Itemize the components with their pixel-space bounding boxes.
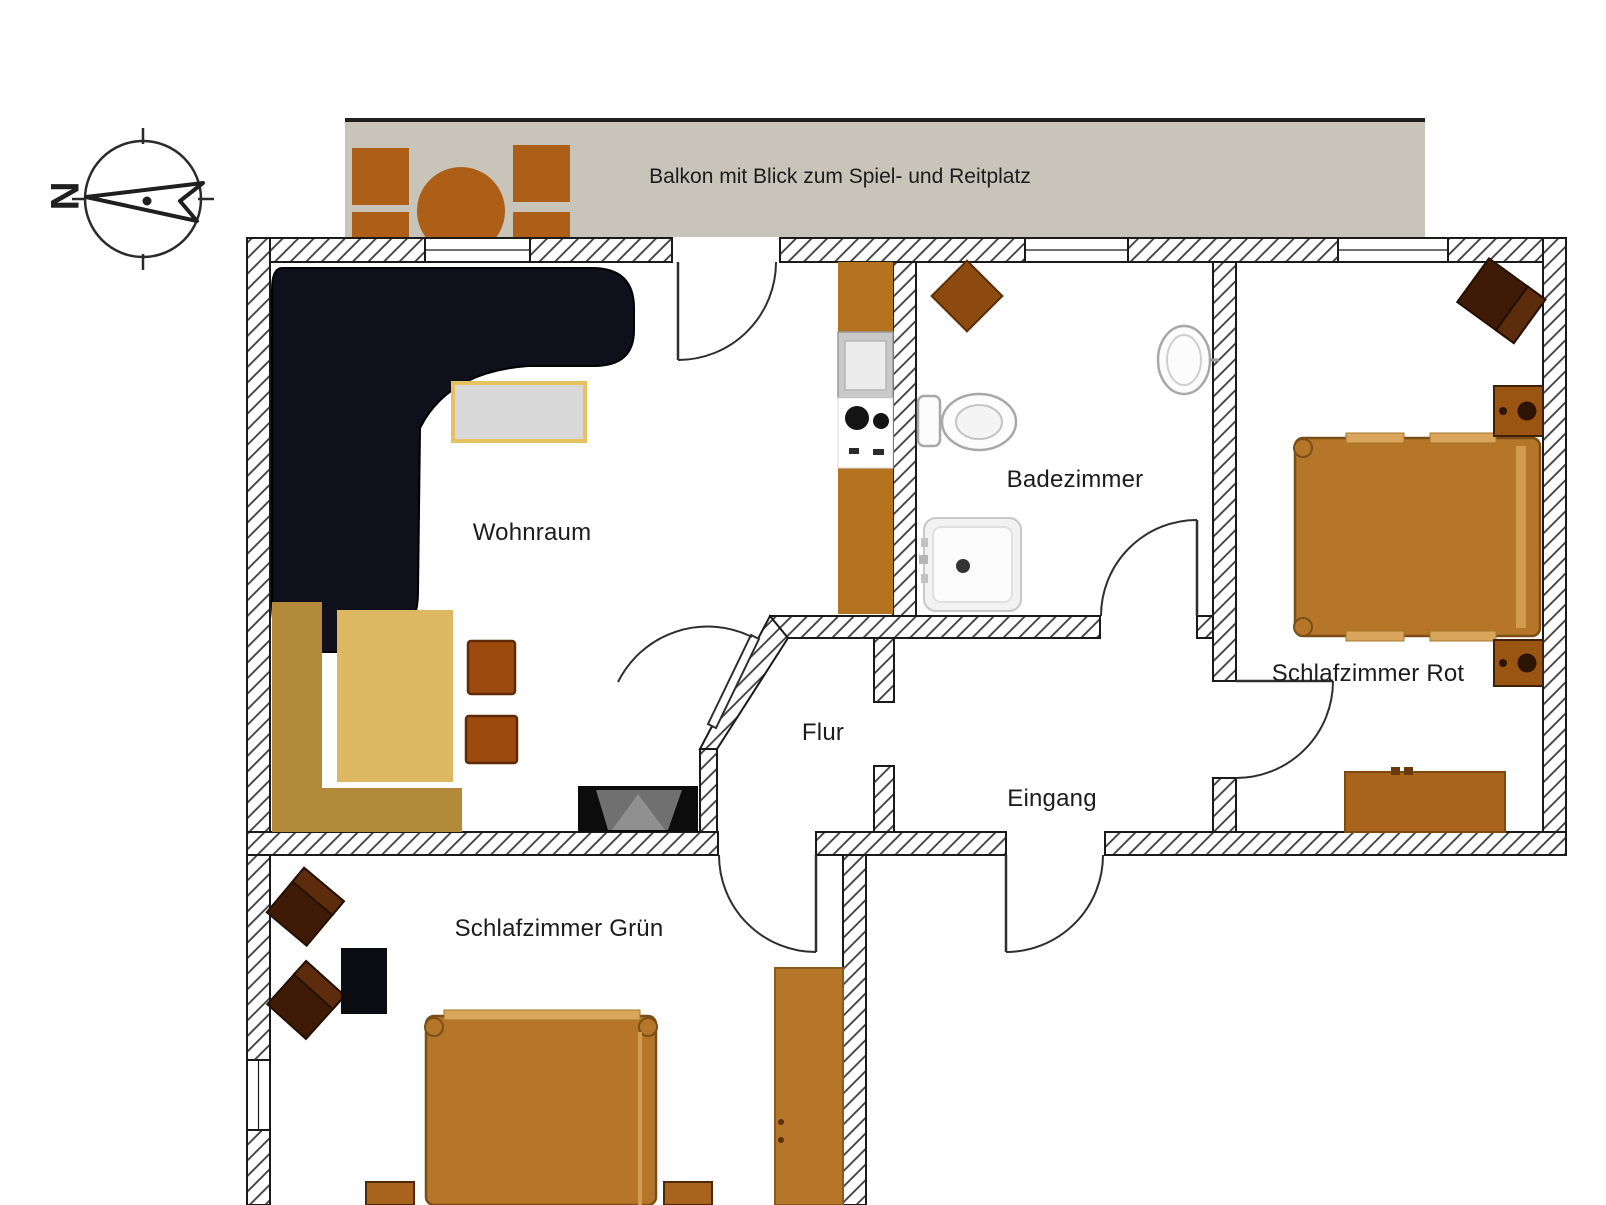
tv-sideboard	[578, 786, 698, 832]
dresser-rot	[1345, 767, 1505, 832]
room-label-flur: Flur	[802, 719, 844, 747]
bed-gruen	[425, 1010, 657, 1205]
bath-corner-cabinet	[932, 261, 1003, 332]
window-wohnraum	[425, 238, 530, 262]
room-label-schlafzimmer-rot: Schlafzimmer Rot	[1272, 660, 1465, 688]
side-table-gruen	[341, 948, 387, 1014]
window-badezimmer	[1025, 238, 1128, 262]
floor-plan: Balkon mit Blick zum Spiel- und Reitplat…	[0, 0, 1606, 1205]
compass-icon: N	[42, 128, 214, 270]
washbasin	[1158, 326, 1219, 394]
coffee-table	[453, 383, 585, 441]
kitchen-counter	[838, 468, 893, 614]
bed-rot	[1294, 433, 1540, 641]
corner-sofa	[272, 268, 634, 652]
floorplan-drawing: N	[0, 0, 1606, 1205]
room-label-eingang: Eingang	[1007, 785, 1096, 813]
window-schlafzimmer-rot	[1338, 238, 1448, 262]
balcony-door	[678, 262, 776, 360]
window-schlafzimmer-gruen	[247, 1060, 270, 1130]
schlafzimmer-rot-door	[1236, 681, 1333, 778]
cooktop	[838, 398, 893, 468]
armchair-gruen-1	[267, 868, 344, 946]
shower	[919, 518, 1021, 611]
wardrobe-gruen	[775, 968, 843, 1205]
room-label-wohnraum: Wohnraum	[473, 519, 592, 547]
armchair-gruen-2	[267, 961, 344, 1039]
badezimmer-door	[1101, 520, 1197, 616]
armchair-rot	[1457, 258, 1545, 343]
entrance-door	[1006, 855, 1103, 952]
kitchenette	[838, 262, 893, 614]
room-label-badezimmer: Badezimmer	[1007, 466, 1144, 494]
kitchen-cabinet	[838, 262, 893, 332]
room-label-schlafzimmer-gruen: Schlafzimmer Grün	[455, 915, 664, 943]
kitchen-sink	[838, 332, 893, 398]
compass-north-label: N	[42, 182, 86, 211]
dining-chairs	[466, 641, 517, 763]
dining-table	[337, 610, 453, 782]
toilet	[918, 394, 1016, 450]
schlafzimmer-gruen-door	[719, 855, 816, 952]
